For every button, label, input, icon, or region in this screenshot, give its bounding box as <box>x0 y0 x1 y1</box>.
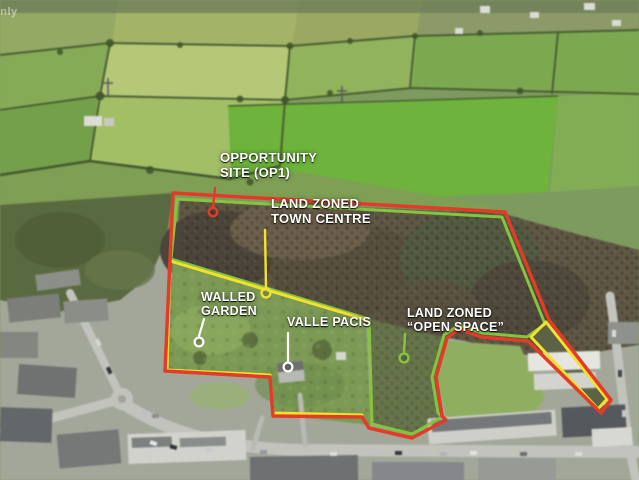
label-land-zoned-open-space: LAND ZONED “OPEN SPACE” <box>407 306 504 334</box>
label-line: OPPORTUNITY <box>220 150 317 165</box>
label-valle-pacis: VALLE PACIS <box>287 315 371 329</box>
label-line: VALLE PACIS <box>287 315 371 329</box>
label-walled-garden: WALLED GARDEN <box>201 290 257 318</box>
photo-background <box>0 0 639 480</box>
garden-shed <box>336 352 346 360</box>
junction-island <box>118 395 126 403</box>
watermark-text: only <box>0 6 18 18</box>
label-land-zoned-town-centre: LAND ZONED TOWN CENTRE <box>271 196 371 226</box>
label-opportunity-site: OPPORTUNITY SITE (OP1) <box>220 150 317 180</box>
label-line: LAND ZONED <box>407 306 504 320</box>
label-line: “OPEN SPACE” <box>407 320 504 334</box>
label-line: LAND ZONED <box>271 196 371 211</box>
label-line: WALLED <box>201 290 257 304</box>
aerial-photo-graphic <box>0 0 639 480</box>
aerial-site-photo: OPPORTUNITY SITE (OP1) LAND ZONED TOWN C… <box>0 0 639 480</box>
label-line: TOWN CENTRE <box>271 211 371 226</box>
label-line: SITE (OP1) <box>220 165 317 180</box>
label-line: GARDEN <box>201 304 257 318</box>
